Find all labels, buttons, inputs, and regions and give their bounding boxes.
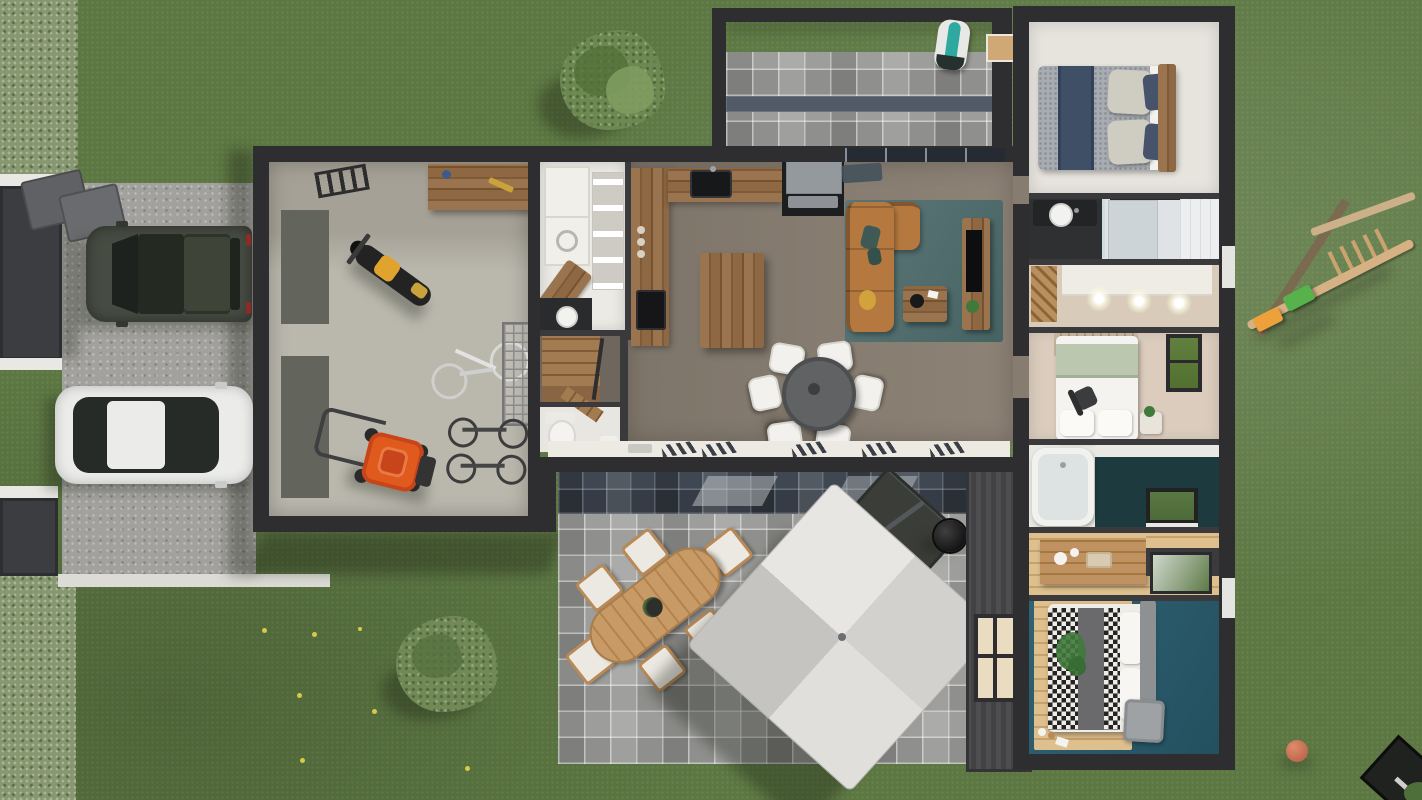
- bike-frame: [462, 428, 506, 432]
- dryer-door: [556, 230, 578, 252]
- wing-divider: [1029, 259, 1219, 265]
- garage-door-mat: [281, 210, 329, 324]
- toy: [1048, 732, 1055, 739]
- suv-mirror: [116, 221, 128, 227]
- bed-single: [1056, 336, 1138, 440]
- suv-taillight: [246, 234, 251, 246]
- kitchen-canister: [637, 250, 645, 258]
- car-mirror: [215, 481, 227, 488]
- tree: [560, 30, 668, 134]
- dining-table: [782, 357, 856, 431]
- pergola-beam: [712, 8, 726, 150]
- white-car: [55, 386, 253, 484]
- wall-garage-east: [528, 162, 540, 516]
- bike-wheel: [497, 417, 530, 450]
- suv: [86, 226, 252, 322]
- scene-canvas[interactable]: [0, 0, 1422, 800]
- wing-wall-north: [1013, 6, 1235, 22]
- tv-screen: [966, 230, 982, 292]
- closet-shelves: [1031, 266, 1057, 322]
- decor-vase: [1054, 552, 1067, 565]
- curtain: [841, 163, 882, 184]
- sofa-side-section: [846, 202, 894, 332]
- bath-tile-wall: [1180, 196, 1219, 262]
- duvet-houndstooth: [1104, 608, 1120, 730]
- drying-rack: [592, 172, 624, 290]
- wing-divider: [1029, 527, 1219, 533]
- flower: [262, 628, 267, 633]
- bed-ottoman: [1123, 699, 1165, 743]
- wall-wc-north: [540, 402, 626, 407]
- dining-table-base: [808, 383, 820, 395]
- wall-south: [545, 457, 1013, 472]
- kitchen-sink: [690, 170, 732, 198]
- flower: [312, 632, 317, 637]
- kitchen-canister: [637, 226, 645, 234]
- spotlight: [1166, 290, 1192, 316]
- pergola-beam: [992, 8, 1012, 150]
- pergola-paving-accent: [726, 96, 1012, 112]
- car-roof: [107, 401, 165, 469]
- wing-divider: [1029, 439, 1219, 445]
- range-hood: [786, 158, 842, 194]
- wall-garage-south: [253, 516, 545, 532]
- plant: [1144, 406, 1155, 417]
- sofa-pillow-teal: [867, 247, 883, 266]
- flower: [358, 627, 362, 631]
- kitchen-canister: [637, 238, 645, 246]
- wing-divider: [1029, 193, 1219, 199]
- hedge-strip: [0, 574, 76, 800]
- workbench-item: [442, 170, 451, 179]
- utility-sink: [556, 306, 578, 328]
- suv-roof: [184, 234, 230, 314]
- sill-dishes: [628, 444, 652, 453]
- suv-taillight: [246, 302, 251, 314]
- bed-runner: [1058, 66, 1094, 170]
- toy: [1038, 728, 1046, 736]
- kitchen-island: [700, 253, 764, 348]
- garage-wall-shadow: [228, 150, 254, 576]
- flower: [297, 693, 302, 698]
- bike-wheel: [447, 416, 480, 449]
- round-sink: [1049, 203, 1073, 227]
- bicycle-frame: [459, 367, 493, 376]
- bike-wheel: [445, 452, 478, 485]
- suv-roof-glass: [138, 234, 184, 314]
- wall-utility-south: [540, 330, 631, 336]
- tree-canopy-light: [606, 66, 654, 114]
- flower: [300, 758, 305, 763]
- closet-shelf: [1146, 532, 1219, 548]
- wall-window-mullion: [993, 614, 997, 702]
- robot-mower-dock: [986, 34, 1016, 62]
- spotlight: [1126, 288, 1152, 314]
- car-mirror: [215, 382, 227, 389]
- plant: [966, 300, 979, 313]
- shower-tray: [1108, 200, 1158, 260]
- wall-stair-east: [620, 332, 628, 452]
- wall-south-step: [540, 457, 556, 532]
- north-glazing: [845, 148, 1005, 162]
- mirror: [1150, 552, 1212, 594]
- swing-top-bar: [1310, 191, 1416, 236]
- parked-bikes: [434, 411, 537, 495]
- bike-frame: [461, 464, 505, 468]
- oven-front: [788, 196, 838, 208]
- shrub: [396, 616, 500, 716]
- spotlight: [1086, 286, 1112, 312]
- pillow: [1098, 410, 1132, 436]
- kitchen-faucet: [710, 166, 716, 172]
- wing-divider: [1029, 327, 1219, 333]
- bath-shelf: [1095, 444, 1219, 457]
- sidewalk-curb: [58, 574, 330, 587]
- doorway: [1013, 356, 1029, 398]
- suv-windshield: [112, 234, 138, 314]
- bike-wheel: [495, 453, 528, 486]
- swing-set: [1238, 188, 1422, 378]
- bathroom-window: [1146, 488, 1198, 524]
- decor-vase: [1070, 548, 1079, 557]
- wing-divider: [1029, 595, 1219, 601]
- hedge-strip: [0, 0, 78, 190]
- bedroom2-window: [1166, 334, 1202, 392]
- wing-wall-east: [1219, 6, 1235, 770]
- shrub-canopy-shade: [412, 634, 462, 678]
- flower: [372, 709, 377, 714]
- pergola-beam: [712, 8, 1012, 22]
- shower-glass: [1102, 198, 1105, 258]
- faucet: [1074, 208, 1079, 213]
- plant-decor: [1068, 656, 1086, 676]
- sofa-pillow-mustard: [859, 290, 876, 310]
- suv-rear-window: [230, 238, 240, 310]
- lower-gate: [0, 498, 58, 576]
- staircase: [542, 336, 600, 386]
- bbq-grill: [934, 520, 966, 552]
- pillow: [1120, 612, 1142, 664]
- suv-mirror: [116, 321, 128, 327]
- gate-post: [0, 358, 62, 370]
- decor-tray: [1086, 552, 1112, 568]
- house-south-shadow: [249, 532, 563, 574]
- red-ball: [1286, 740, 1308, 762]
- umbrella-hub: [838, 633, 846, 641]
- coffee-table: [903, 286, 947, 322]
- flower: [465, 766, 470, 771]
- bathtub-drain: [1060, 462, 1066, 468]
- bed-double: [1038, 66, 1176, 170]
- east-window-jamb: [1222, 578, 1235, 618]
- wall-garage-west: [253, 146, 269, 532]
- window-mullion: [1166, 360, 1202, 363]
- wall-utility-east: [625, 162, 631, 340]
- wing-wall-south: [1013, 754, 1235, 770]
- east-window-jamb: [1222, 246, 1235, 288]
- doorway: [1013, 176, 1029, 204]
- blanket-green: [1056, 344, 1138, 378]
- cooktop: [636, 290, 666, 330]
- coffee-table-tray: [910, 294, 924, 308]
- robot-mower: [928, 17, 975, 76]
- washer: [544, 166, 590, 218]
- headboard: [1158, 64, 1176, 172]
